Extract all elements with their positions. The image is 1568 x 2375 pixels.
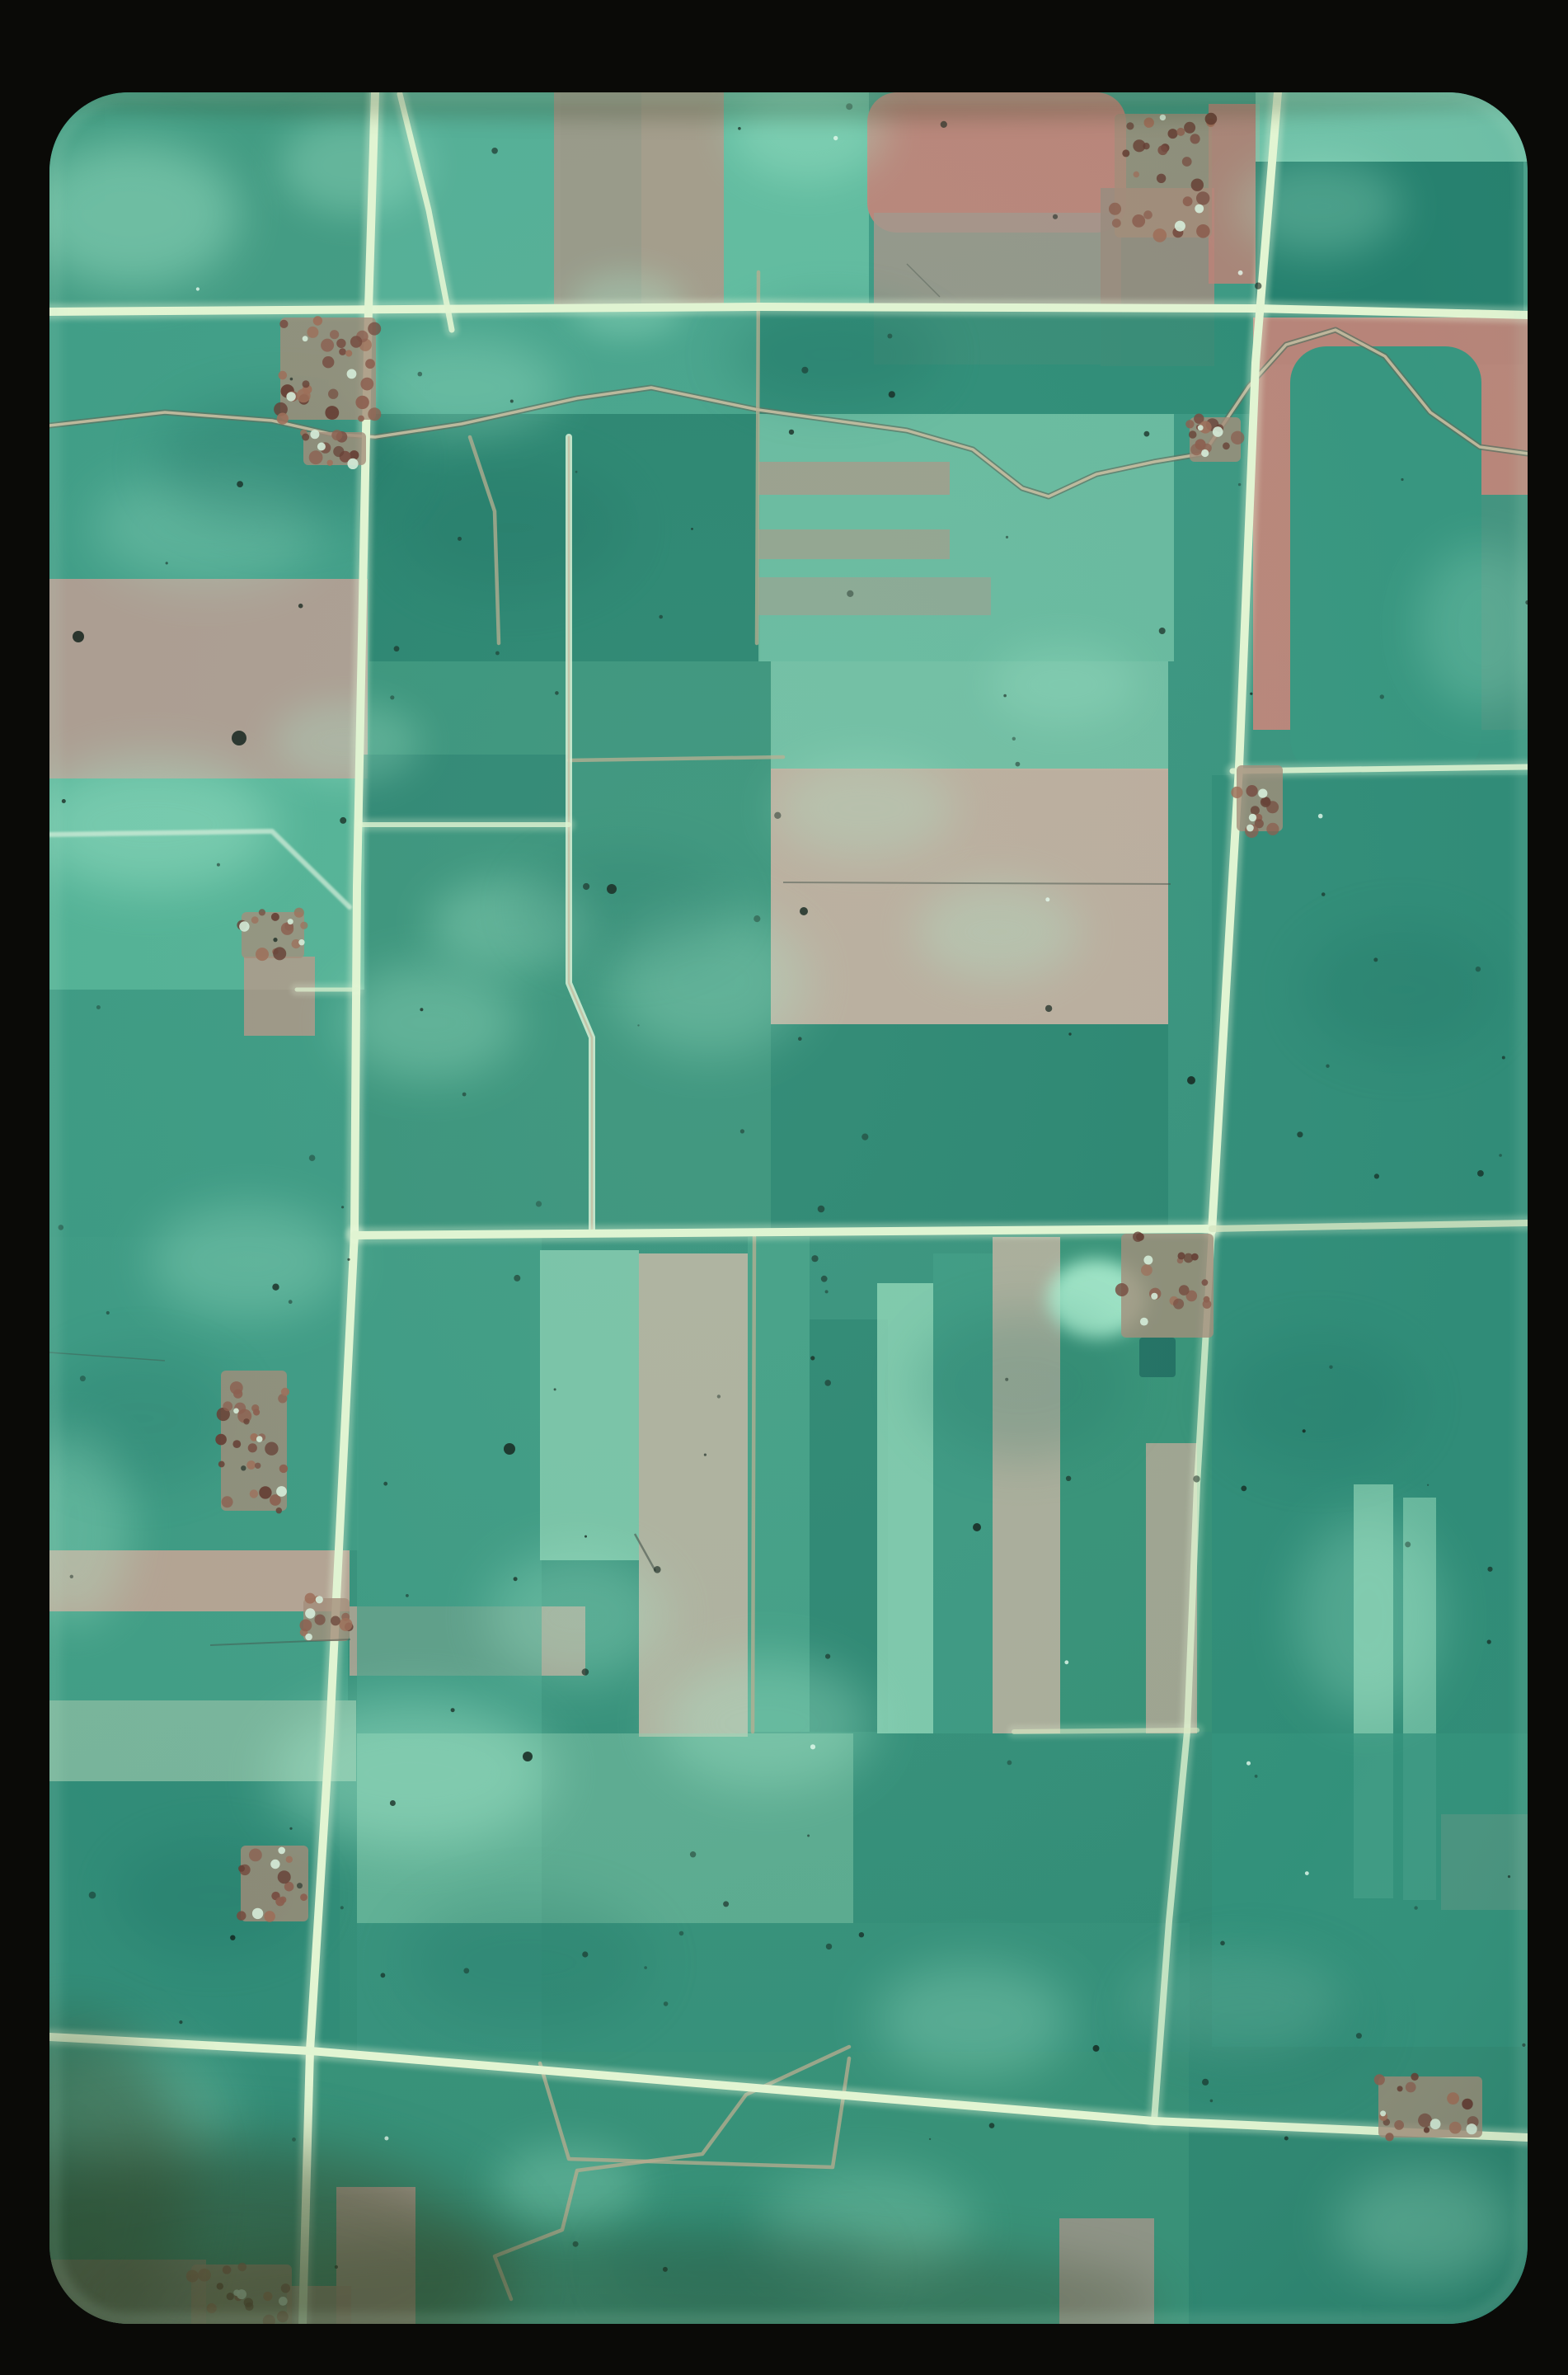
- film-emulsion: [0, 78, 1550, 2375]
- color-cast-overlay: [49, 92, 1528, 2324]
- slide-mount: [0, 0, 1568, 2375]
- film-frame: [0, 0, 1568, 2375]
